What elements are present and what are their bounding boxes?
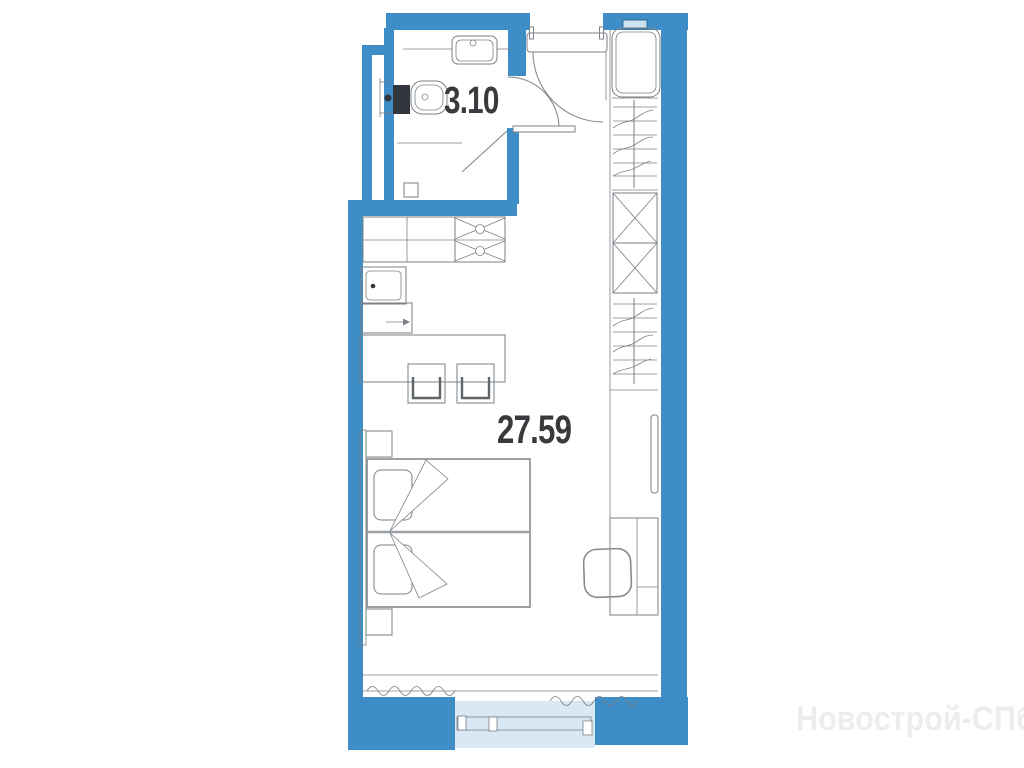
clothes-squiggle	[613, 335, 653, 352]
main-room-area-label: 27.59	[497, 408, 571, 453]
wardrobe-hanging-section	[613, 100, 657, 188]
watermark-text: Новострой-СПб	[796, 700, 1024, 739]
kitchen-counter	[363, 217, 505, 262]
entry-threshold	[527, 33, 607, 52]
tv	[651, 415, 658, 493]
hall-partition	[513, 126, 575, 132]
hob-burner	[476, 225, 485, 234]
window-glazing	[455, 701, 595, 748]
window-mullion	[489, 717, 497, 731]
kitchen-sink	[361, 267, 406, 304]
desk	[610, 518, 658, 615]
washing-machine	[612, 28, 660, 97]
window-mullion	[583, 721, 592, 735]
bottom-wall-right	[595, 697, 688, 745]
appliance-box	[361, 303, 412, 333]
bathroom-door-leaf	[462, 131, 507, 172]
nightstand	[366, 431, 392, 457]
toilet-bowl	[411, 81, 447, 114]
appliance-arrow-head	[403, 319, 410, 326]
stool-back	[462, 377, 489, 398]
kitchen-sink-drain	[371, 284, 376, 289]
floor-plan-page: 3.10 27.59 Новострой-СПб	[0, 0, 1024, 768]
bathroom-top-wall	[386, 13, 530, 30]
bathroom-bottom-wall	[350, 200, 517, 216]
sleeping-area	[360, 430, 530, 645]
right-wall	[661, 13, 687, 712]
kitchen	[361, 217, 505, 333]
bathroom-right-wall-upper	[508, 28, 526, 76]
chair	[583, 548, 632, 598]
washing-machine-inner	[616, 32, 656, 93]
clothes-squiggle	[613, 359, 651, 374]
bathroom-door-arc	[508, 77, 559, 128]
dining-table	[360, 335, 505, 382]
outer-left-wall-upper	[362, 45, 372, 205]
nightstand	[366, 609, 392, 635]
outer-left-nub	[362, 45, 392, 55]
clothes-squiggle	[613, 110, 653, 128]
hob-burner	[476, 247, 485, 256]
floor-plan-drawing	[0, 0, 1024, 768]
dining	[360, 335, 505, 403]
toilet-cistern	[393, 85, 410, 114]
floor-drain	[404, 183, 418, 197]
wardrobe-strip	[583, 28, 660, 615]
window-mullion	[458, 716, 466, 730]
stool-back	[413, 377, 440, 398]
bottom-wall-left	[348, 697, 455, 750]
clothes-squiggle	[613, 137, 653, 154]
toilet-flush-knob	[385, 95, 392, 102]
clothes-squiggle	[613, 308, 653, 326]
wardrobe-hanging-section	[613, 298, 657, 384]
bathroom-area-label: 3.10	[444, 80, 499, 123]
entrance-door-arc	[533, 52, 603, 122]
bathroom-right-wall-lower	[507, 128, 519, 204]
